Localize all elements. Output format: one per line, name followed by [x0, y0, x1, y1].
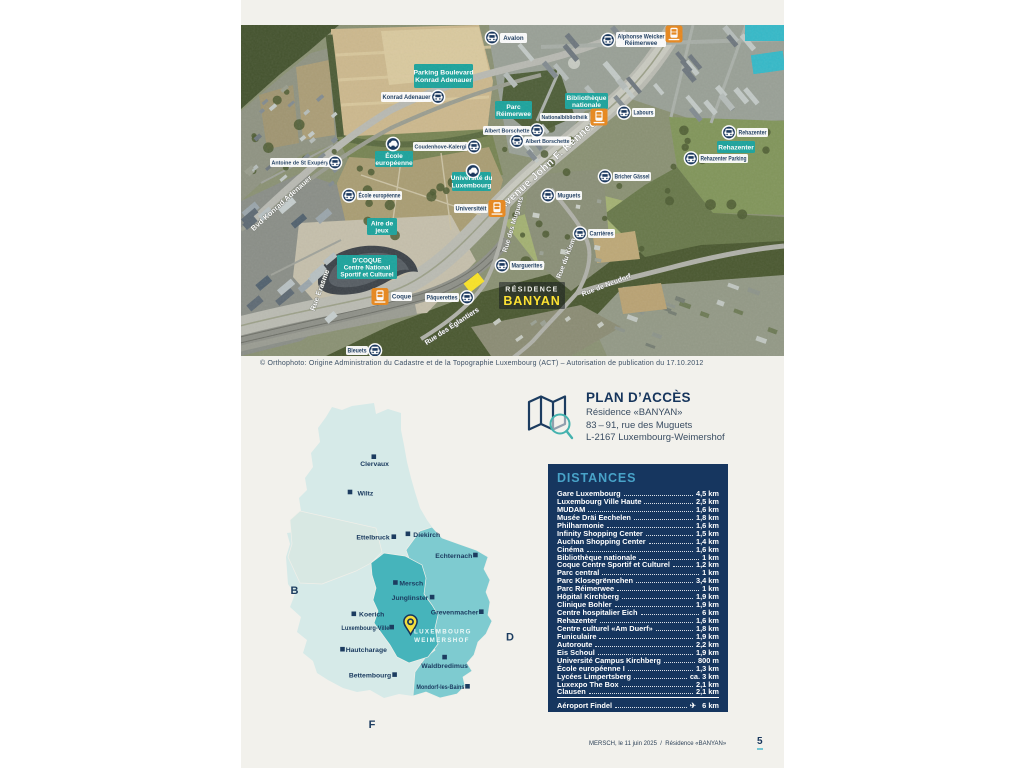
svg-text:B: B: [291, 585, 299, 597]
svg-text:Grevenmacher: Grevenmacher: [431, 610, 479, 617]
svg-text:Bettembourg: Bettembourg: [349, 672, 391, 679]
svg-text:Wiltz: Wiltz: [358, 491, 374, 498]
svg-text:WEIMERSHOF: WEIMERSHOF: [414, 637, 470, 644]
svg-text:Mondorf-les-Bains: Mondorf-les-Bains: [416, 684, 464, 691]
svg-text:Koerich: Koerich: [359, 612, 384, 619]
svg-text:F: F: [369, 719, 376, 730]
svg-text:D: D: [506, 632, 514, 644]
svg-text:Hautcharage: Hautcharage: [346, 647, 387, 654]
svg-text:Diekirch: Diekirch: [413, 532, 440, 539]
svg-text:Junglinster: Junglinster: [392, 595, 429, 602]
svg-text:LUXEMBOURG: LUXEMBOURG: [414, 629, 472, 636]
svg-text:Clervaux: Clervaux: [360, 461, 389, 468]
svg-text:Luxembourg-Ville: Luxembourg-Ville: [341, 625, 389, 632]
svg-text:Waldbredimus: Waldbredimus: [421, 663, 468, 670]
svg-text:Ettelbruck: Ettelbruck: [356, 534, 389, 541]
svg-text:Echternach: Echternach: [435, 553, 472, 560]
svg-text:Mersch: Mersch: [399, 580, 423, 587]
